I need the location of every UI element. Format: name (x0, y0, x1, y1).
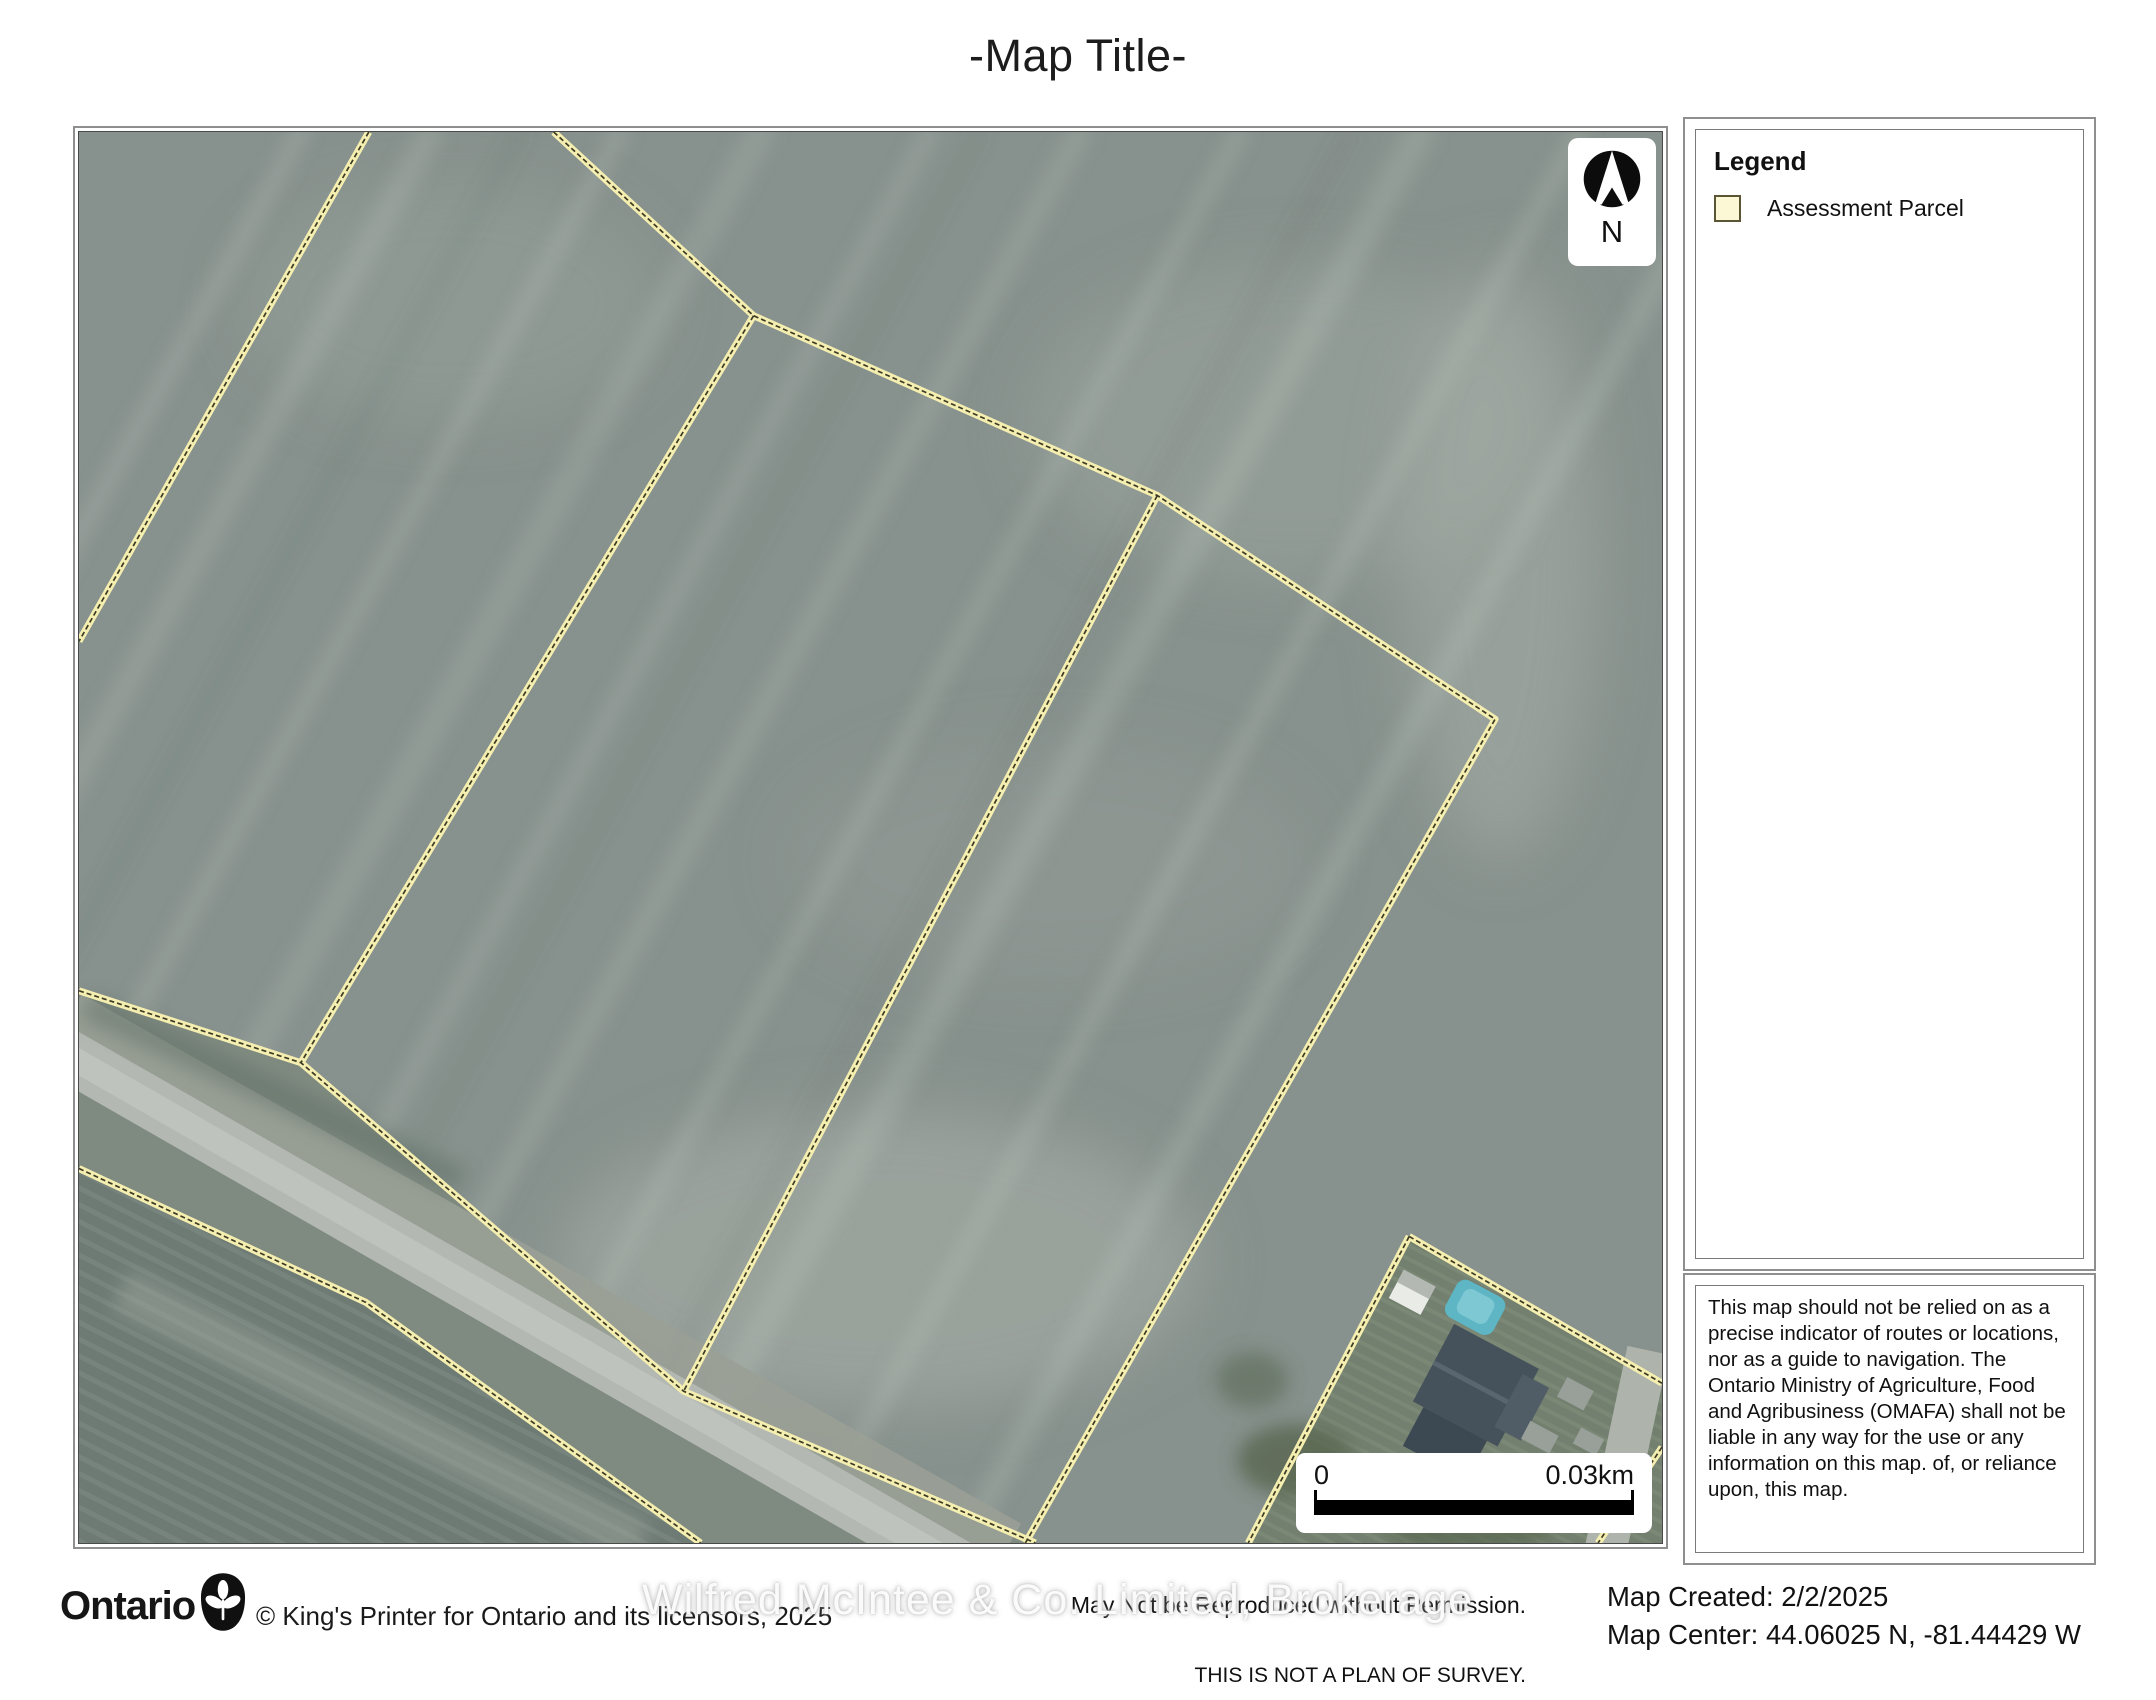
map-created-label: Map Created: (1607, 1581, 1774, 1612)
map-center-label: Map Center: (1607, 1619, 1758, 1650)
map-metadata: Map Created: 2/2/2025 Map Center: 44.060… (1607, 1578, 2081, 1654)
scale-bar (1314, 1500, 1634, 1515)
scale-start-label: 0 (1314, 1461, 1329, 1491)
aerial-imagery (79, 132, 1662, 1543)
trillium-icon (200, 1572, 246, 1637)
north-label: N (1601, 214, 1623, 250)
map-center-value: 44.06025 N, -81.44429 W (1766, 1619, 2081, 1650)
legend-heading: Legend (1714, 146, 2065, 177)
assessment-parcel-swatch (1714, 195, 1741, 222)
map-canvas: N 0 0.03km (78, 131, 1663, 1544)
map-document-page: -Map Title- (0, 0, 2156, 1700)
legend-item-assessment-parcel: Assessment Parcel (1714, 195, 2065, 222)
page-title: -Map Title- (0, 30, 2156, 82)
north-arrow-icon (1579, 146, 1645, 212)
disclaimer-panel: This map should not be relied on as a pr… (1683, 1273, 2096, 1565)
copyright-text: © King's Printer for Ontario and its lic… (256, 1601, 832, 1632)
map-created-row: Map Created: 2/2/2025 (1607, 1578, 2081, 1616)
ontario-wordmark: Ontario (60, 1584, 195, 1629)
reproduction-notice: May Not be Reproduced without Permission… (1071, 1592, 1526, 1619)
north-arrow-widget: N (1568, 138, 1656, 266)
legend-item-label: Assessment Parcel (1767, 195, 1964, 222)
legend-panel: Legend Assessment Parcel (1683, 117, 2096, 1271)
scale-end-label: 0.03km (1545, 1461, 1634, 1491)
scale-bar-widget: 0 0.03km (1296, 1453, 1652, 1533)
map-created-value: 2/2/2025 (1781, 1581, 1888, 1612)
survey-notice: THIS IS NOT A PLAN OF SURVEY. (1195, 1664, 1526, 1688)
map-frame: N 0 0.03km (73, 126, 1668, 1549)
map-center-row: Map Center: 44.06025 N, -81.44429 W (1607, 1616, 2081, 1654)
disclaimer-text: This map should not be relied on as a pr… (1696, 1286, 2083, 1512)
